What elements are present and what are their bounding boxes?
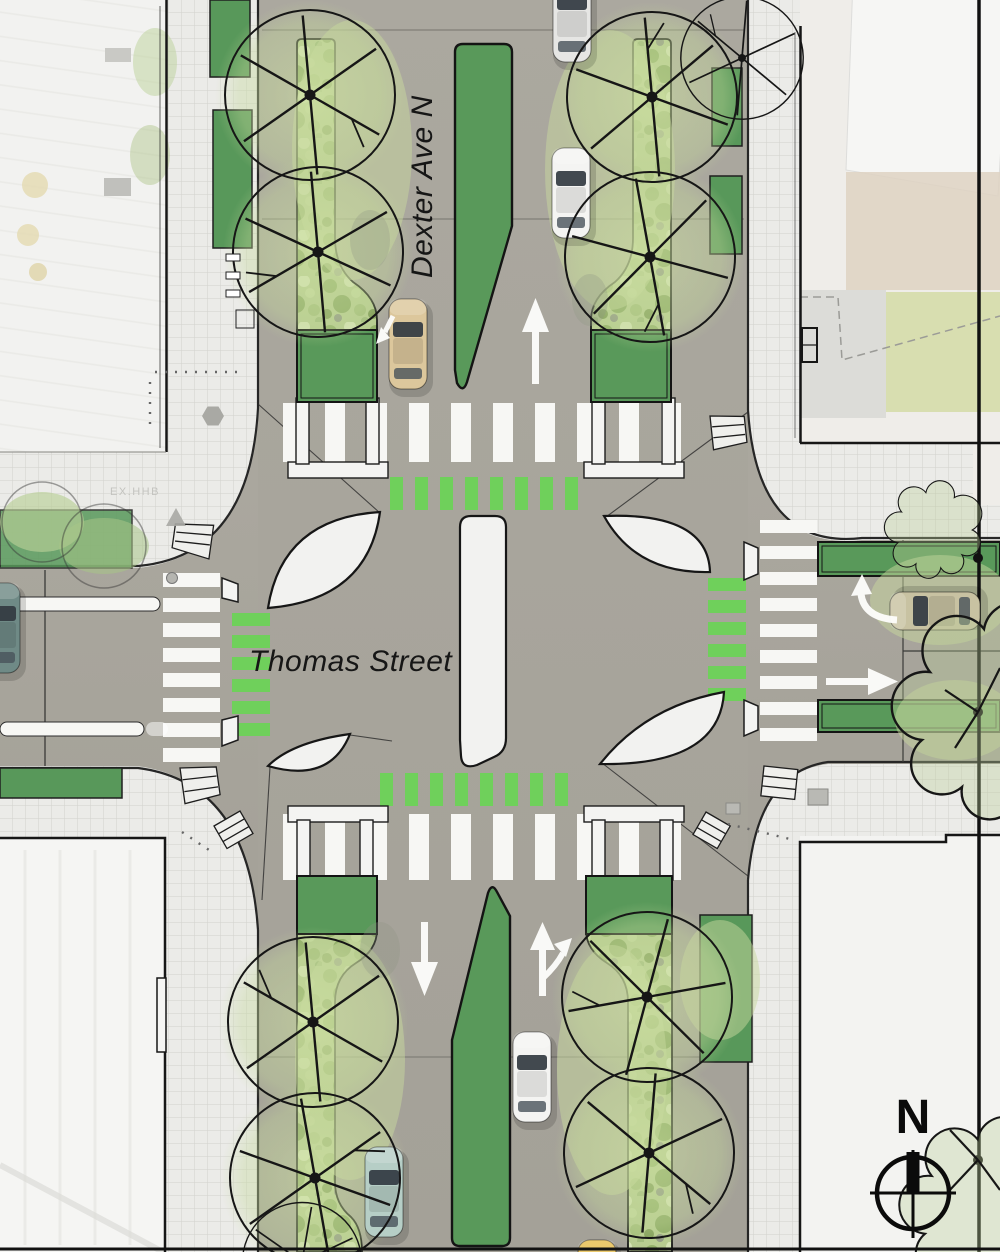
crosswalk-east xyxy=(760,520,817,741)
car-icon xyxy=(389,299,433,397)
context-bottom-left-building xyxy=(0,838,166,1252)
street-label-dexter: Dexter Ave N xyxy=(406,95,440,278)
car-icon xyxy=(513,1032,557,1130)
context-top-left-plaza xyxy=(0,0,177,452)
street-label-thomas: Thomas Street xyxy=(249,645,452,679)
signal-pole xyxy=(167,573,178,584)
north-arrow-label: N xyxy=(886,1090,940,1145)
car-icon xyxy=(365,1147,409,1245)
site-plan: Dexter Ave N Thomas Street EX.HHB N xyxy=(0,0,1000,1252)
median-islands xyxy=(452,44,512,1246)
car-icon xyxy=(0,583,26,681)
context-top-right-block xyxy=(795,0,1000,505)
survey-note: EX.HHB xyxy=(110,486,160,498)
site-plan-svg xyxy=(0,0,1000,1252)
